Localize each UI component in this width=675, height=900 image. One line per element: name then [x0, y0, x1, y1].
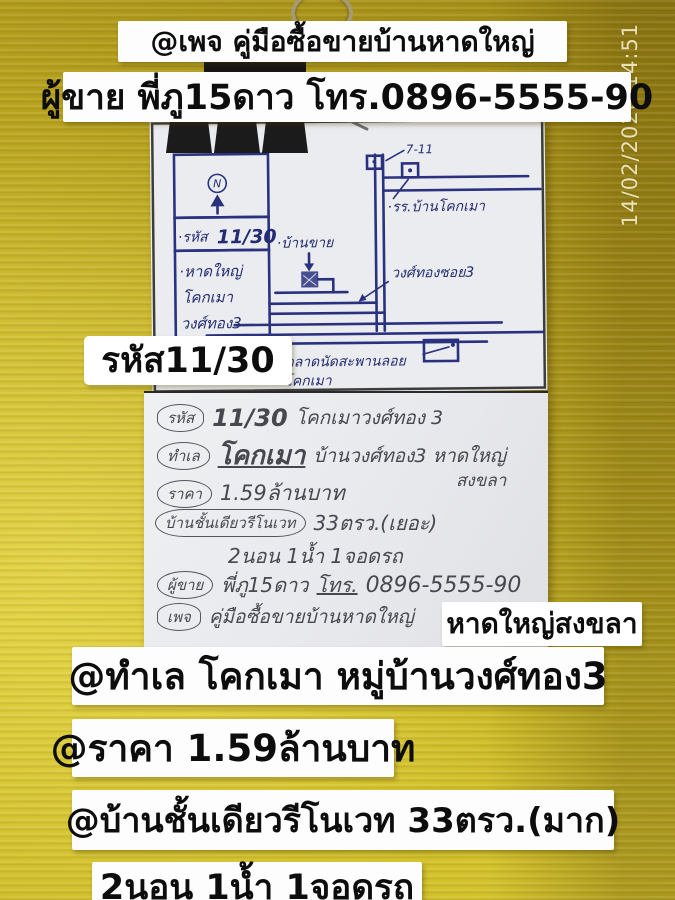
north-arrow-icon [210, 194, 224, 206]
footer-rooms-strip: 2นอน 1น้ำ 1จอดรถ [92, 862, 422, 900]
note-code-rest: โคกเมาวงศ์ทอง 3 [296, 403, 443, 433]
note-tel-label: โทร. [317, 569, 358, 601]
note-page-label: เพจ [157, 603, 201, 631]
photo-timestamp: 14/02/2026 14:51 [618, 22, 660, 227]
footer-location-strip: @ทำเล โคกเมา หมู่บ้านวงศ์ทอง3 [72, 647, 604, 705]
poi-market-label-line1: ·ตลาดนัดสะพานลอย [280, 353, 407, 370]
note-row-rooms: 2นอน 1น้ำ 1จอดรถ [228, 540, 403, 572]
note-house-label: บ้านชั้นเดียวรีโนเวท [155, 509, 306, 537]
note-code-value: 11/30 [212, 404, 288, 432]
poi-soi-label: วงศ์ทองซอย3 [391, 264, 474, 282]
footer-price-strip: @ราคา 1.59ล้านบาท [72, 719, 394, 777]
note-location-name: โคกเมา [218, 435, 306, 476]
note-seller-label: ผู้ขาย [157, 571, 213, 599]
poi-school-label: ·รร.บ้านโคกเมา [387, 198, 486, 216]
area-badge: หาดใหญ่สงขลา [442, 602, 642, 646]
map-poi-market: ·ตลาดนัดสะพานลอย โคกเมา [280, 340, 458, 390]
note-province: สงขลา [456, 467, 506, 494]
header-page-strip: @เพจ คู่มือซื้อขายบ้านหาดใหญ่ [118, 21, 567, 62]
map-area-line3: วงศ์ทอง3 [181, 314, 242, 333]
note-location-label: ทำเล [157, 442, 210, 470]
note-page-value: คู่มือซื้อขายบ้านหาดใหญ่ [209, 602, 414, 632]
note-row-seller: ผู้ขาย พี่ภู15ดาว โทร. 0896-5555-90 [157, 569, 521, 601]
note-price-label: ราคา [157, 480, 212, 508]
code-badge: รหัส11/30 [84, 336, 292, 385]
poi-house-label: ·บ้านขาย [277, 235, 334, 252]
note-row-province: สงขลา [456, 467, 506, 494]
listing-photo: 14/02/2026 14:51 N ·รหัส 11/30 ·หาดใหญ่ … [0, 0, 675, 900]
note-row-location: ทำเล โคกเมา บ้านวงศ์ทอง3 หาดใหญ่ [157, 435, 506, 476]
footer-house-strip: @บ้านชั้นเดียวรีโนเวท 33ตรว.(มาก) [72, 790, 614, 850]
note-tel-value: 0896-5555-90 [366, 573, 522, 598]
map-poi-711: 7-11 [367, 142, 434, 169]
map-code-value: 11/30 [217, 226, 277, 249]
map-area-line2: โคกเมา [182, 288, 233, 307]
compass-north-letter: N [213, 177, 221, 190]
down-arrow-icon [304, 263, 314, 271]
header-seller-strip: ผู้ขาย พี่ภู15ดาว โทร.0896-5555-90 [63, 72, 631, 122]
note-code-label: รหัส [157, 404, 204, 432]
note-location-rest: บ้านวงศ์ทอง3 หาดใหญ่ [313, 441, 506, 471]
note-row-page: เพจ คู่มือซื้อขายบ้านหาดใหญ่ [157, 602, 414, 632]
note-row-price: ราคา 1.59ล้านบาท [157, 477, 345, 510]
note-house-value: 33ตรว.(เยอะ) [314, 507, 438, 539]
note-seller-name: พี่ภู15ดาว [221, 569, 308, 601]
note-row-code: รหัส 11/30 โคกเมาวงศ์ทอง 3 [157, 403, 443, 433]
map-code-prefix: ·รหัส [178, 229, 210, 245]
note-rooms: 2นอน 1น้ำ 1จอดรถ [228, 540, 403, 572]
note-price-value: 1.59ล้านบาท [220, 477, 345, 510]
map-area-line1: ·หาดใหญ่ [179, 262, 244, 281]
poi-711-label: 7-11 [406, 142, 433, 156]
note-row-house: บ้านชั้นเดียวรีโนเวท 33ตรว.(เยอะ) [155, 507, 437, 539]
map-poi-house: ·บ้านขาย [277, 235, 335, 293]
